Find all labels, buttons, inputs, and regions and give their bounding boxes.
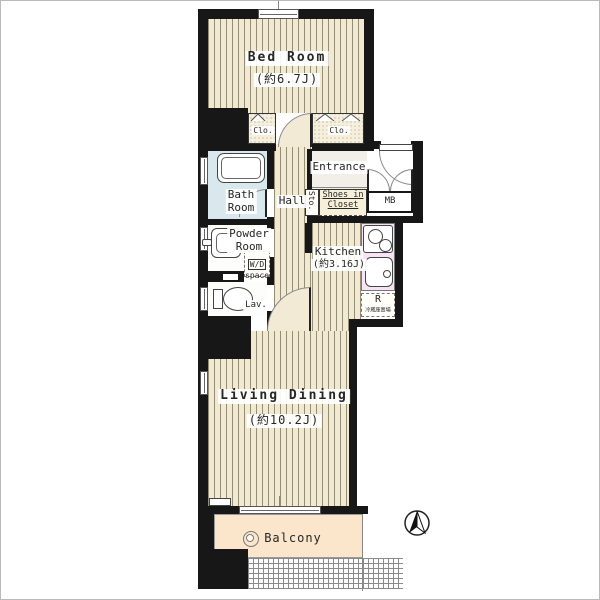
floor-plan: Clo. Clo. Sto. Shoes in Closet MB R 冷蔵庫 [0,0,600,600]
fridge-label: R [362,294,394,305]
bedroom-window-tick [278,1,279,9]
wd-sublabel: space [245,271,269,280]
kitchen-floor-patch [312,319,349,331]
shoes-closet-box: Shoes in Closet [319,189,367,216]
kitchen-label: Kitchen [313,246,363,259]
bedroom-floor [208,19,364,113]
powder-label: Powder Room [227,228,271,253]
front-door-leaf [379,144,413,151]
powder-label-2: Room [229,241,269,254]
lav-label: Lav. [243,300,269,310]
wall-kitchen-stub [305,223,312,253]
stove-burner-2 [379,239,392,252]
wall-kitchen-right [395,223,403,327]
entrance-label: Entrance [311,161,368,174]
fridge-space: R 冷蔵庫置場 [361,293,395,317]
wd-label: W/D [248,259,266,270]
wall-bath-powder [208,219,267,225]
wall-bath-hall-1 [267,151,274,189]
bath-label-1: Bath [228,189,255,202]
wd-space: W/D space [244,251,270,277]
storage-label: Sto. [307,191,316,210]
kitchen-sink [365,257,393,287]
balcony-faucet-inner [246,534,254,542]
wall-lav-corner-block [208,316,251,359]
sliding-door-tick [279,496,280,506]
shoes-closet-label-1: Shoes in [320,190,366,200]
kitchen-size: (約3.16J) [311,259,367,271]
wall-left-mid [198,151,208,506]
bath-label-2: Room [228,202,255,215]
bedroom-door-arc [278,113,312,147]
powder-label-1: Powder [229,228,269,241]
wall-bottom-left-block [198,549,248,589]
meter-box: MB [367,191,413,213]
wall-bedroom-corner [198,108,248,144]
bath-label: Bath Room [226,189,257,214]
hall-label: Hall [277,195,308,208]
wall-bedroom-bottom-right [312,144,374,151]
living-label: Living Dining [218,389,350,404]
lav-window [200,287,208,311]
bedroom-window [258,9,299,19]
closet-left: Clo. [248,113,276,144]
fridge-note: 冷蔵庫置場 [364,306,391,314]
bedroom-size: (約6.7J) [254,73,320,87]
ground-hatch [248,558,403,589]
kitchen-sink-drain [383,270,391,278]
balcony-sliding-door [239,506,321,514]
bedroom-label: Bed Room [246,51,329,66]
kitchen-floor [312,223,361,319]
wall-bedroom-right [364,9,374,144]
wall-left-lower [198,506,214,549]
stove [363,225,393,253]
toilet-tank [213,289,223,309]
wall-alcove-right [413,141,423,223]
bifold-door-icon [249,113,275,121]
living-window [200,371,208,395]
wall-kitchen-bottom [349,319,403,327]
wall-notch [223,274,238,280]
balcony-label: Balcony [262,532,324,546]
wall-living-right [349,327,357,514]
balcony-edge-line [362,514,363,591]
entrance-step-line [312,187,367,188]
wall-bedroom-bottom-left [198,144,276,151]
living-size: (約10.2J) [247,414,322,428]
shoes-closet-label-2: Closet [320,200,366,210]
bifold-door-icon [313,113,363,121]
powder-sink-faucet [202,239,212,246]
balcony-faucet-icon [243,531,259,547]
wall-entrance-bottom [307,216,423,223]
meter-box-label: MB [369,196,411,206]
bathtub [217,153,265,183]
north-compass-icon [403,509,431,537]
bath-window [200,157,208,185]
closet-right: Clo. [312,113,364,144]
bottom-wall-notch [209,498,231,506]
closet-left-label: Clo. [251,126,274,135]
closet-right-label: Clo. [327,126,350,135]
bathtub-inner [221,157,261,179]
